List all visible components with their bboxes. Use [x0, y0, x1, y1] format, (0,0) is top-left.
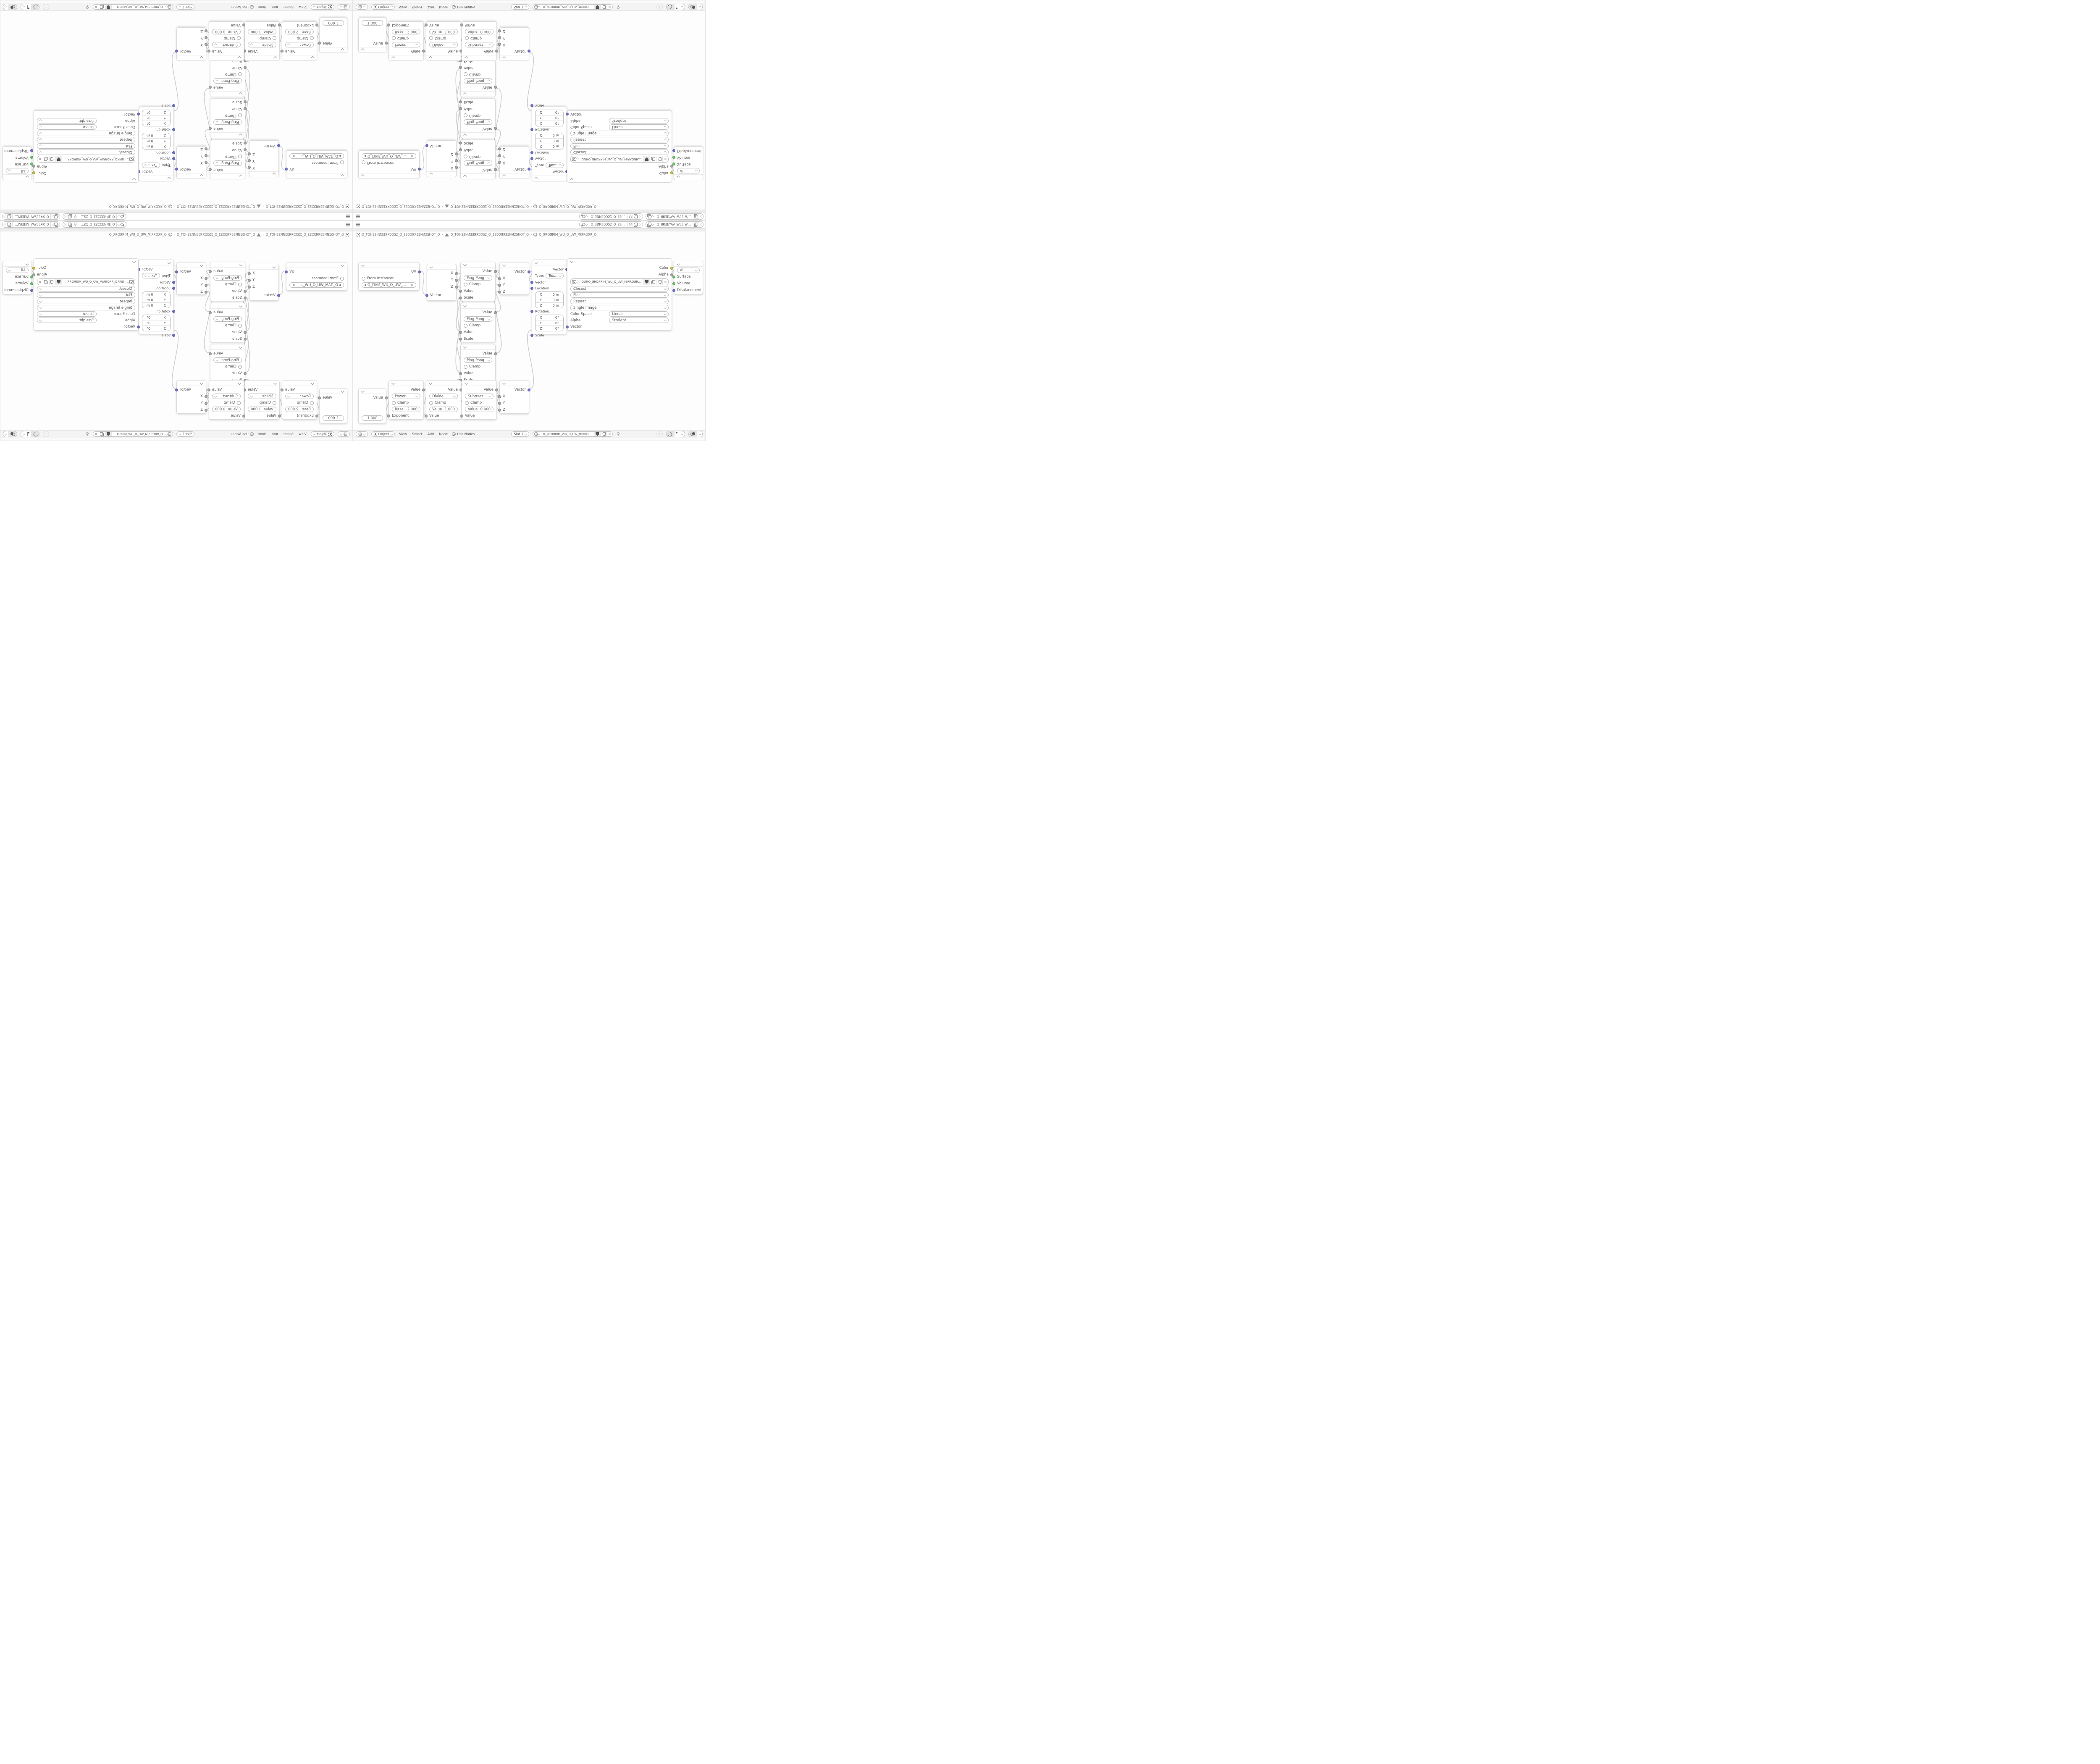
view-layer-browse-button[interactable] — [51, 214, 60, 219]
unlink-material-button[interactable] — [93, 432, 99, 436]
operation-dropdown[interactable]: Ping-Pong — [213, 316, 242, 322]
operation-dropdown[interactable]: Divide — [248, 42, 276, 47]
use-nodes-toggle[interactable]: Use Nodes — [231, 5, 254, 9]
value-field[interactable]: Value1.000 — [248, 29, 276, 34]
value-input-socket[interactable] — [459, 290, 462, 293]
menu-add[interactable]: Add — [427, 432, 435, 436]
node-material-output[interactable]: All Surface Volume Displacement — [3, 261, 32, 294]
operation-dropdown[interactable]: Ping-Pong — [213, 357, 242, 363]
node-combine-xyz-bottom[interactable]: Vector X Y Z — [176, 380, 206, 414]
workspace-menu-icon[interactable] — [356, 223, 360, 226]
operation-dropdown[interactable]: Ping-Pong — [213, 275, 242, 281]
node-combine-xyz-top[interactable]: Vector X Y Z — [499, 146, 529, 179]
slot-dropdown[interactable]: Slot 1 — [176, 431, 194, 437]
color-space-dropdown[interactable]: Linear — [609, 311, 669, 317]
scene-browse-button[interactable] — [117, 222, 126, 227]
value-input-socket[interactable] — [242, 415, 245, 417]
close-icon[interactable] — [410, 283, 413, 286]
node-separate-xyz[interactable]: X Y Z Vector — [249, 264, 279, 301]
value-output-socket[interactable] — [495, 388, 498, 391]
operation-dropdown[interactable]: Power — [285, 42, 314, 47]
new-scene-button[interactable] — [633, 214, 638, 219]
mapping-type-dropdown[interactable]: Texture — [142, 163, 160, 168]
clamp-checkbox[interactable] — [464, 114, 467, 118]
value-output-socket[interactable] — [207, 388, 210, 391]
workspace-menu-icon[interactable] — [346, 223, 350, 226]
parent-node-tree-button[interactable]: ↑ — [656, 431, 663, 437]
value-input-socket[interactable] — [244, 290, 247, 293]
operation-dropdown[interactable]: Divide — [429, 42, 458, 47]
node-combine-xyz-bottom[interactable]: Vector X Y Z — [499, 380, 529, 414]
uv-map-dropdown[interactable]: O_ПAM_WU_O_UW_MAП_O — [362, 153, 416, 159]
value-field[interactable]: 1.000 — [362, 415, 383, 421]
workspace-menu-icon[interactable] — [346, 215, 350, 218]
z-output-socket[interactable] — [455, 286, 458, 289]
extension-dropdown[interactable]: Repeat — [37, 137, 135, 142]
area-divider[interactable] — [353, 228, 705, 231]
menu-select[interactable]: Select — [411, 5, 423, 9]
rotation-y-field[interactable]: Y0° — [535, 320, 563, 326]
node-value[interactable]: Value 1.000 — [358, 18, 386, 53]
view-layer-browse-button[interactable] — [51, 222, 60, 227]
color-output-socket[interactable] — [32, 267, 35, 270]
image-filename[interactable]: GИP.O_ЯROЯRIM_WU_O_UW_MIЯROЯR_O.PNG — [580, 157, 644, 161]
vector-output-socket[interactable] — [175, 388, 178, 391]
color-space-dropdown[interactable]: Linear — [37, 311, 97, 317]
target-dropdown[interactable]: All — [677, 268, 700, 273]
node-math-subtract[interactable]: Value Subtract Clamp Value0.000 Value — [209, 380, 244, 420]
clamp-checkbox[interactable] — [464, 324, 467, 328]
vector-output-socket[interactable] — [175, 168, 178, 171]
overlays-dropdown[interactable] — [697, 4, 703, 10]
menu-view[interactable]: View — [398, 432, 408, 436]
use-nodes-checkbox[interactable] — [250, 5, 254, 9]
unlink-image-button[interactable] — [662, 279, 668, 285]
from-instancer-checkbox[interactable] — [340, 277, 344, 281]
operation-dropdown[interactable]: Power — [285, 394, 314, 399]
source-dropdown[interactable]: Single Image — [570, 305, 669, 310]
value-output-socket[interactable] — [494, 311, 497, 314]
collapse-node-icon[interactable] — [26, 262, 29, 265]
node-math-divide[interactable]: Value Divide Clamp Value1.000 Value — [244, 380, 280, 420]
fake-user-button[interactable] — [56, 156, 62, 162]
value-output-socket[interactable] — [422, 388, 425, 391]
fake-user-button[interactable] — [594, 5, 600, 9]
rotation-y-field[interactable]: Y0° — [142, 115, 170, 121]
collapse-node-icon[interactable] — [391, 56, 395, 60]
parent-node-tree-button[interactable]: ↑ — [43, 4, 49, 10]
vector-input-socket[interactable] — [277, 294, 280, 297]
y-input-socket[interactable] — [498, 37, 501, 39]
value-output-socket[interactable] — [209, 270, 212, 273]
collapse-node-icon[interactable] — [239, 263, 242, 266]
surface-input-socket[interactable] — [672, 163, 675, 166]
extension-dropdown[interactable]: Repeat — [37, 299, 135, 304]
value-output-socket[interactable] — [385, 396, 388, 399]
collapse-node-icon[interactable] — [429, 56, 432, 60]
x-input-socket[interactable] — [498, 161, 501, 164]
alpha-dropdown[interactable]: Straight — [609, 318, 669, 323]
snap-target-dropdown[interactable] — [674, 4, 685, 10]
editor-type-dropdown[interactable] — [338, 431, 350, 437]
node-canvas[interactable]: O_TOHS2ͶͶƎƎЯЯƆƆS2_O_2SƆƆЯЯƎƎͶͶ2SHOT_O › … — [0, 231, 352, 430]
y-input-socket[interactable] — [498, 284, 501, 287]
collapse-node-icon[interactable] — [273, 173, 276, 176]
exponent-input-socket[interactable] — [387, 415, 390, 417]
collapse-node-icon[interactable] — [465, 56, 468, 60]
view-layer-name[interactable]: O_ЯRƎEYAV_WƎEIW_O_WIƎEW_VAYƎER_O — [655, 223, 693, 226]
alpha-output-socket[interactable] — [32, 165, 35, 168]
source-dropdown[interactable]: Single Image — [570, 131, 669, 136]
pin-scene-button[interactable] — [627, 222, 633, 227]
node-math-subtract[interactable]: Value Subtract Clamp Value0.000 Value — [462, 380, 497, 420]
value-output-socket[interactable] — [209, 127, 212, 130]
node-math-ping-pong-2[interactable]: Value Ping-Pong Clamp Value Scale — [460, 99, 496, 138]
new-view-layer-button[interactable] — [8, 222, 13, 227]
collapse-node-icon[interactable] — [463, 92, 467, 96]
node-canvas[interactable]: O_TOHS2ͶͶƎƎЯЯƆƆS2_O_2SƆƆЯЯƎƎͶͶ2SHOT_O › … — [353, 231, 705, 430]
menu-select[interactable]: Select — [411, 432, 423, 436]
uv-output-socket[interactable] — [285, 270, 288, 273]
x-input-socket[interactable] — [498, 395, 501, 398]
node-combine-xyz-bottom[interactable]: Vector X Y Z — [499, 27, 529, 61]
mapping-type-dropdown[interactable]: Texture — [142, 273, 160, 278]
material-name[interactable]: O_ЯROЯRIM_WU_O_UW_MIЯROЯR_O — [541, 433, 594, 436]
value-input-socket[interactable] — [244, 331, 247, 334]
collapse-node-icon[interactable] — [132, 260, 136, 263]
menu-select[interactable]: Select — [282, 5, 294, 9]
pin-scene-button[interactable] — [73, 214, 78, 219]
menu-view[interactable]: View — [298, 432, 307, 436]
scale-input-socket[interactable] — [172, 334, 175, 337]
operation-dropdown[interactable]: Ping-Pong — [464, 119, 492, 125]
value-field[interactable]: Value1.000 — [248, 407, 276, 412]
z-input-socket[interactable] — [498, 409, 501, 412]
collapse-node-icon[interactable] — [502, 263, 506, 267]
collapse-node-icon[interactable] — [239, 304, 242, 307]
y-input-socket[interactable] — [205, 402, 207, 405]
unlink-image-button[interactable] — [37, 156, 43, 162]
x-output-socket[interactable] — [248, 166, 251, 169]
fake-user-button[interactable] — [105, 432, 112, 436]
node-mapping[interactable]: Vector Type:Texture Vector Location: X0 … — [139, 260, 174, 334]
location-input-socket[interactable] — [530, 151, 533, 154]
use-nodes-toggle[interactable]: Use Nodes — [452, 5, 475, 9]
operation-dropdown[interactable]: Ping-Pong — [464, 275, 492, 281]
node-math-ping-pong-1[interactable]: Value Ping-Pong Clamp Value Scale — [460, 140, 496, 179]
rotation-xyz-fields[interactable]: X0° Y0° Z0° — [535, 110, 564, 126]
snap-target-dropdown[interactable] — [674, 431, 685, 437]
clamp-checkbox[interactable] — [238, 155, 242, 159]
rotation-x-field[interactable]: X0° — [535, 121, 563, 126]
source-dropdown[interactable]: Single Image — [37, 131, 135, 136]
image-browse-button[interactable] — [126, 156, 135, 162]
pin-button[interactable] — [86, 432, 89, 436]
displacement-input-socket[interactable] — [672, 289, 675, 292]
value-field[interactable]: 1.000 — [323, 415, 344, 421]
copy-image-button[interactable] — [50, 156, 56, 162]
material-browse-button[interactable] — [165, 432, 173, 436]
x-output-socket[interactable] — [248, 272, 251, 275]
scene-browse-button[interactable] — [580, 222, 589, 227]
z-input-socket[interactable] — [498, 30, 501, 33]
rotation-z-field[interactable]: Z0° — [535, 326, 563, 331]
slot-dropdown[interactable]: Slot 1 — [511, 431, 529, 437]
clamp-checkbox[interactable] — [465, 401, 469, 405]
image-filename[interactable]: GИP.O_ЯROЯRIM_WU_O_UW_MIЯROЯR_O.PNG — [580, 280, 644, 283]
scale-input-socket[interactable] — [459, 297, 462, 299]
remove-view-layer-button[interactable] — [3, 222, 8, 227]
copy-material-button[interactable] — [99, 5, 105, 9]
collapse-node-icon[interactable] — [200, 263, 203, 267]
node-combine-xyz-top[interactable]: Vector X Y Z — [499, 262, 529, 295]
from-instancer-checkbox[interactable] — [362, 277, 365, 281]
rotation-z-field[interactable]: Z0° — [535, 110, 563, 115]
new-view-layer-button[interactable] — [693, 214, 698, 219]
node-separate-xyz[interactable]: X Y Z Vector — [249, 140, 279, 177]
clamp-checkbox[interactable] — [238, 73, 242, 76]
material-datablock-field[interactable]: O_ЯROЯRIM_WU_O_UW_MIЯROЯR_O — [93, 4, 173, 10]
close-icon[interactable] — [410, 155, 413, 157]
operation-dropdown[interactable]: Ping-Pong — [213, 160, 242, 166]
collapse-node-icon[interactable] — [200, 381, 203, 385]
shader-mode-dropdown[interactable]: Object — [371, 431, 395, 437]
vector-input-socket[interactable] — [137, 325, 140, 328]
clamp-checkbox[interactable] — [464, 73, 467, 76]
pack-image-button[interactable] — [656, 156, 662, 162]
collapse-node-icon[interactable] — [311, 381, 314, 385]
copy-material-button[interactable] — [600, 5, 606, 9]
area-divider[interactable] — [353, 210, 705, 213]
alpha-dropdown[interactable]: Straight — [609, 118, 669, 123]
location-x-field[interactable]: X0 m — [535, 144, 563, 149]
operation-dropdown[interactable]: Ping-Pong — [213, 119, 242, 125]
material-datablock-field[interactable]: O_ЯROЯRIM_WU_O_UW_MIЯROЯR_O — [533, 431, 613, 437]
z-output-socket[interactable] — [248, 153, 251, 156]
image-browse-button[interactable] — [571, 156, 580, 162]
collapse-node-icon[interactable] — [361, 174, 365, 178]
node-value[interactable]: Value 1.000 — [319, 18, 347, 53]
menu-view[interactable]: View — [398, 5, 408, 9]
view-layer-browse-button[interactable] — [646, 214, 655, 219]
scene-selector[interactable]: O_ƎͶͶƎƆƆS2_O_2SƆƆƎͶͶƎ_O — [579, 213, 643, 220]
location-xyz-fields[interactable]: X0 m Y0 m Z0 m — [535, 133, 564, 150]
scale-input-socket[interactable] — [459, 142, 462, 145]
collapse-node-icon[interactable] — [502, 174, 506, 178]
mapping-type-dropdown[interactable]: Texture — [546, 273, 564, 278]
image-datablock-field[interactable]: GИP.O_ЯROЯRIM_WU_O_UW_MIЯROЯR_O.PNG — [570, 156, 669, 163]
remove-view-layer-button[interactable] — [3, 214, 8, 219]
editor-type-dropdown[interactable] — [356, 4, 368, 10]
collapse-node-icon[interactable] — [26, 176, 29, 179]
z-input-socket[interactable] — [498, 291, 501, 294]
vector-output-socket[interactable] — [528, 270, 530, 273]
collapse-node-icon[interactable] — [463, 175, 467, 178]
snap-target-dropdown[interactable] — [21, 4, 31, 10]
node-material-output[interactable]: All Surface Volume Displacement — [674, 261, 703, 294]
location-input-socket[interactable] — [172, 151, 175, 154]
node-math-power[interactable]: Value Power Clamp Base2.000 Exponent — [282, 21, 317, 61]
overlays-dropdown[interactable] — [3, 431, 9, 437]
value-output-socket[interactable] — [281, 50, 283, 53]
node-math-power[interactable]: Value Power Clamp Base2.000 Exponent — [388, 21, 424, 61]
operation-dropdown[interactable]: Divide — [248, 394, 276, 399]
value-output-socket[interactable] — [318, 396, 321, 399]
material-datablock-field[interactable]: O_ЯROЯRIM_WU_O_UW_MIЯROЯR_O — [533, 4, 613, 10]
overlays-dropdown[interactable] — [697, 431, 703, 437]
scene-browse-button[interactable] — [117, 214, 126, 219]
operation-dropdown[interactable]: Subtract — [212, 394, 241, 399]
unlink-scene-button[interactable] — [638, 214, 643, 219]
vector-input-socket[interactable] — [530, 157, 533, 160]
y-output-socket[interactable] — [248, 160, 251, 163]
clamp-checkbox[interactable] — [392, 401, 396, 405]
menu-add[interactable]: Add — [427, 5, 435, 9]
location-xyz-fields[interactable]: X0 m Y0 m Z0 m — [535, 291, 564, 308]
color-space-dropdown[interactable]: Linear — [37, 124, 97, 130]
collapse-node-icon[interactable] — [463, 263, 467, 266]
scale-input-socket[interactable] — [459, 101, 462, 104]
snap-target-dropdown[interactable] — [21, 431, 31, 437]
scene-selector[interactable]: O_ƎͶͶƎƆƆS2_O_2SƆƆƎͶͶƎ_O — [63, 213, 126, 220]
node-uv-map[interactable]: UV From Instancer O_ПAM_WU_O_UW_MAП_O — [286, 262, 347, 291]
clamp-checkbox[interactable] — [464, 283, 467, 286]
collapse-node-icon[interactable] — [200, 174, 203, 178]
alpha-dropdown[interactable]: Straight — [37, 318, 97, 323]
collapse-node-icon[interactable] — [341, 174, 344, 178]
value-output-socket[interactable] — [209, 311, 212, 314]
location-input-socket[interactable] — [530, 287, 533, 290]
rotation-input-socket[interactable] — [530, 128, 533, 131]
material-browse-button[interactable] — [533, 5, 541, 9]
clamp-checkbox[interactable] — [238, 114, 242, 118]
scale-input-socket[interactable] — [244, 338, 247, 341]
collapse-node-icon[interactable] — [273, 381, 277, 385]
operation-dropdown[interactable]: Power — [392, 42, 420, 47]
value-output-socket[interactable] — [207, 50, 210, 53]
copy-image-button[interactable] — [650, 279, 656, 285]
target-dropdown[interactable]: All — [677, 168, 700, 173]
node-material-output[interactable]: All Surface Volume Displacement — [674, 147, 703, 180]
collapse-node-icon[interactable] — [361, 263, 365, 267]
vector-output-socket[interactable] — [175, 50, 178, 53]
operation-dropdown[interactable]: Ping-Pong — [464, 160, 492, 166]
value-input-socket[interactable] — [460, 24, 463, 27]
copy-image-button[interactable] — [50, 279, 56, 285]
volume-input-socket[interactable] — [30, 282, 33, 285]
location-input-socket[interactable] — [172, 287, 175, 290]
node-math-power[interactable]: Value Power Clamp Base2.000 Exponent — [388, 380, 424, 420]
node-canvas[interactable]: O_TOHS2ͶͶƎƎЯЯƆƆS2_O_2SƆƆЯЯƎƎͶͶ2SHOT_O › … — [353, 11, 705, 210]
overlays-toggle-button[interactable] — [689, 431, 697, 437]
value-input-socket[interactable] — [459, 331, 462, 334]
node-value[interactable]: Value 1.000 — [319, 388, 347, 423]
scene-selector[interactable]: O_ƎͶͶƎƆƆS2_O_2SƆƆƎͶͶƎ_O — [63, 221, 126, 228]
vector-output-socket[interactable] — [175, 270, 178, 273]
use-nodes-toggle[interactable]: Use Nodes — [452, 432, 475, 436]
shader-mode-dropdown[interactable]: Object — [371, 4, 395, 10]
node-math-ping-pong-2[interactable]: Value Ping-Pong Clamp Value Scale — [210, 99, 245, 138]
color-space-dropdown[interactable]: Linear — [609, 124, 669, 130]
operation-dropdown[interactable]: Power — [392, 394, 420, 399]
operation-dropdown[interactable]: Ping-Pong — [213, 78, 242, 84]
collapse-node-icon[interactable] — [239, 134, 242, 137]
operation-dropdown[interactable]: Ping-Pong — [464, 78, 492, 84]
clamp-checkbox[interactable] — [238, 365, 242, 369]
base-field[interactable]: Base2.000 — [392, 407, 420, 412]
x-input-socket[interactable] — [205, 277, 207, 280]
image-datablock-field[interactable]: GИP.O_ЯROЯRIM_WU_O_UW_MIЯROЯR_O.PNG — [570, 278, 669, 285]
clamp-checkbox[interactable] — [237, 37, 241, 40]
y-output-socket[interactable] — [455, 279, 458, 282]
view-layer-selector[interactable]: O_ЯRƎEYAV_WƎEIW_O_WIƎEW_VAYƎER_O — [646, 221, 703, 228]
fake-user-button[interactable] — [643, 279, 650, 285]
use-nodes-checkbox[interactable] — [452, 432, 456, 436]
collapse-node-icon[interactable] — [677, 176, 680, 179]
node-math-divide[interactable]: Value Divide Clamp Value1.000 Value — [426, 21, 461, 61]
collapse-node-icon[interactable] — [465, 381, 468, 385]
menu-select[interactable]: Select — [282, 432, 294, 436]
projection-dropdown[interactable]: Flat — [570, 292, 669, 298]
area-divider[interactable] — [0, 228, 352, 231]
clamp-checkbox[interactable] — [392, 37, 396, 40]
collapse-node-icon[interactable] — [238, 381, 241, 385]
node-math-ping-pong-1[interactable]: Value Ping-Pong Clamp Value Scale — [210, 140, 245, 179]
y-input-socket[interactable] — [205, 284, 207, 287]
scene-selector[interactable]: O_ƎͶͶƎƆƆS2_O_2SƆƆƎͶͶƎ_O — [579, 221, 643, 228]
vector-output-socket[interactable] — [528, 388, 530, 391]
material-name[interactable]: O_ЯROЯRIM_WU_O_UW_MIЯROЯR_O — [112, 5, 165, 9]
z-input-socket[interactable] — [498, 148, 501, 151]
vector-input-socket[interactable] — [425, 144, 428, 147]
material-browse-button[interactable] — [533, 432, 541, 436]
value-output-socket[interactable] — [209, 86, 212, 89]
value-input-socket[interactable] — [425, 415, 428, 417]
rotation-xyz-fields[interactable]: X0° Y0° Z0° — [142, 110, 171, 126]
collapse-node-icon[interactable] — [239, 345, 242, 349]
area-divider[interactable] — [0, 210, 352, 213]
node-math-ping-pong-3[interactable]: Value Ping-Pong Clamp Value Scale — [210, 58, 245, 97]
rotation-z-field[interactable]: Z0° — [142, 326, 170, 331]
vector-input-socket[interactable] — [530, 281, 533, 284]
view-layer-name[interactable]: O_ЯRƎEYAV_WƎEIW_O_WIƎEW_VAYƎER_O — [13, 215, 51, 218]
node-math-ping-pong-2[interactable]: Value Ping-Pong Clamp Value Scale — [460, 303, 496, 342]
collapse-node-icon[interactable] — [535, 261, 538, 264]
operation-dropdown[interactable]: Ping-Pong — [464, 316, 492, 322]
material-browse-button[interactable] — [165, 5, 173, 9]
clamp-checkbox[interactable] — [429, 37, 433, 40]
snap-toggle-button[interactable] — [667, 431, 674, 437]
surface-input-socket[interactable] — [672, 276, 675, 278]
node-math-ping-pong-3[interactable]: Value Ping-Pong Clamp Value Scale — [210, 344, 245, 383]
menu-view[interactable]: View — [298, 5, 307, 9]
workspace-menu-icon[interactable] — [356, 215, 360, 218]
fake-user-button[interactable] — [594, 432, 600, 436]
rotation-z-field[interactable]: Z0° — [142, 110, 170, 115]
rotation-xyz-fields[interactable]: X0° Y0° Z0° — [535, 315, 564, 331]
menu-add[interactable]: Add — [271, 432, 279, 436]
view-layer-selector[interactable]: O_ЯRƎEYAV_WƎEIW_O_WIƎEW_VAYƎER_O — [646, 213, 703, 220]
interpolation-dropdown[interactable]: Closest — [570, 286, 669, 291]
volume-input-socket[interactable] — [672, 156, 675, 159]
material-name[interactable]: O_ЯROЯRIM_WU_O_UW_MIЯROЯR_O — [541, 5, 594, 9]
view-layer-selector[interactable]: O_ЯRƎEYAV_WƎEIW_O_WIƎEW_VAYƎER_O — [2, 213, 60, 220]
snap-toggle-button[interactable] — [31, 4, 39, 10]
menu-node[interactable]: Node — [438, 432, 449, 436]
value-field[interactable]: Value1.000 — [429, 407, 458, 412]
color-output-socket[interactable] — [670, 267, 673, 270]
new-view-layer-button[interactable] — [693, 222, 698, 227]
